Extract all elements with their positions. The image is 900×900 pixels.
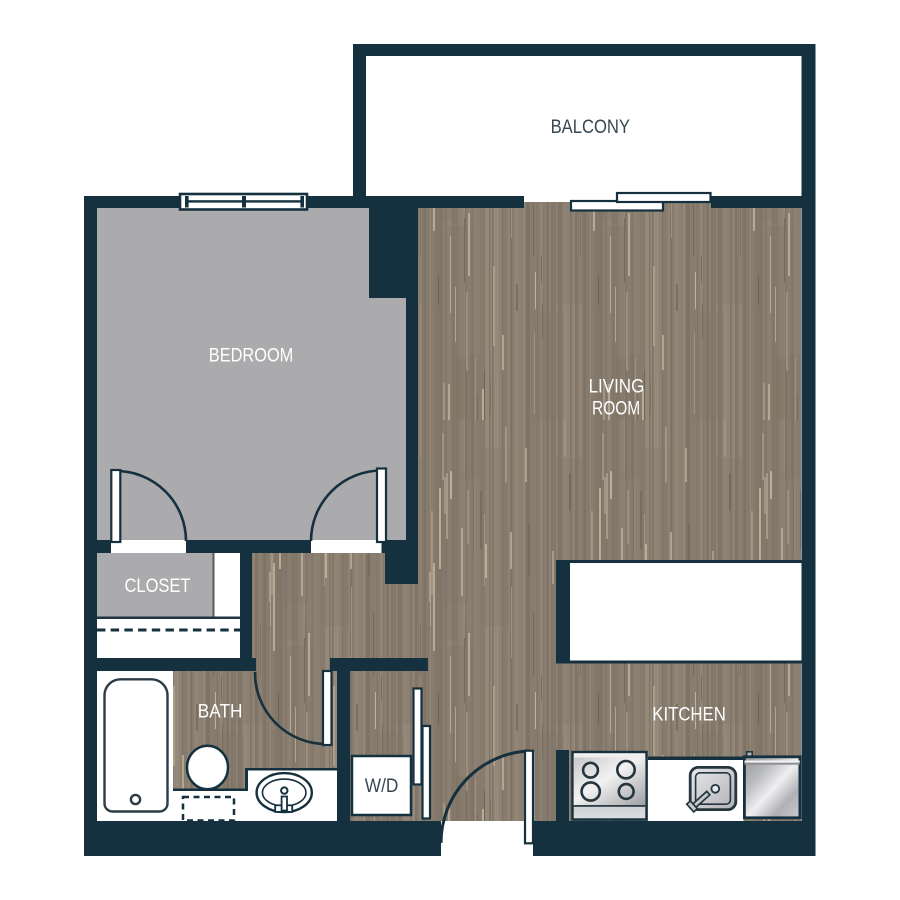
svg-text:CLOSET: CLOSET <box>125 576 191 597</box>
svg-text:BATH: BATH <box>198 702 243 723</box>
svg-text:LIVING: LIVING <box>589 376 645 397</box>
svg-text:ROOM: ROOM <box>592 399 640 420</box>
svg-text:BALCONY: BALCONY <box>551 117 631 138</box>
svg-text:KITCHEN: KITCHEN <box>652 704 726 725</box>
svg-text:BEDROOM: BEDROOM <box>209 346 293 367</box>
svg-text:W/D: W/D <box>365 776 399 797</box>
